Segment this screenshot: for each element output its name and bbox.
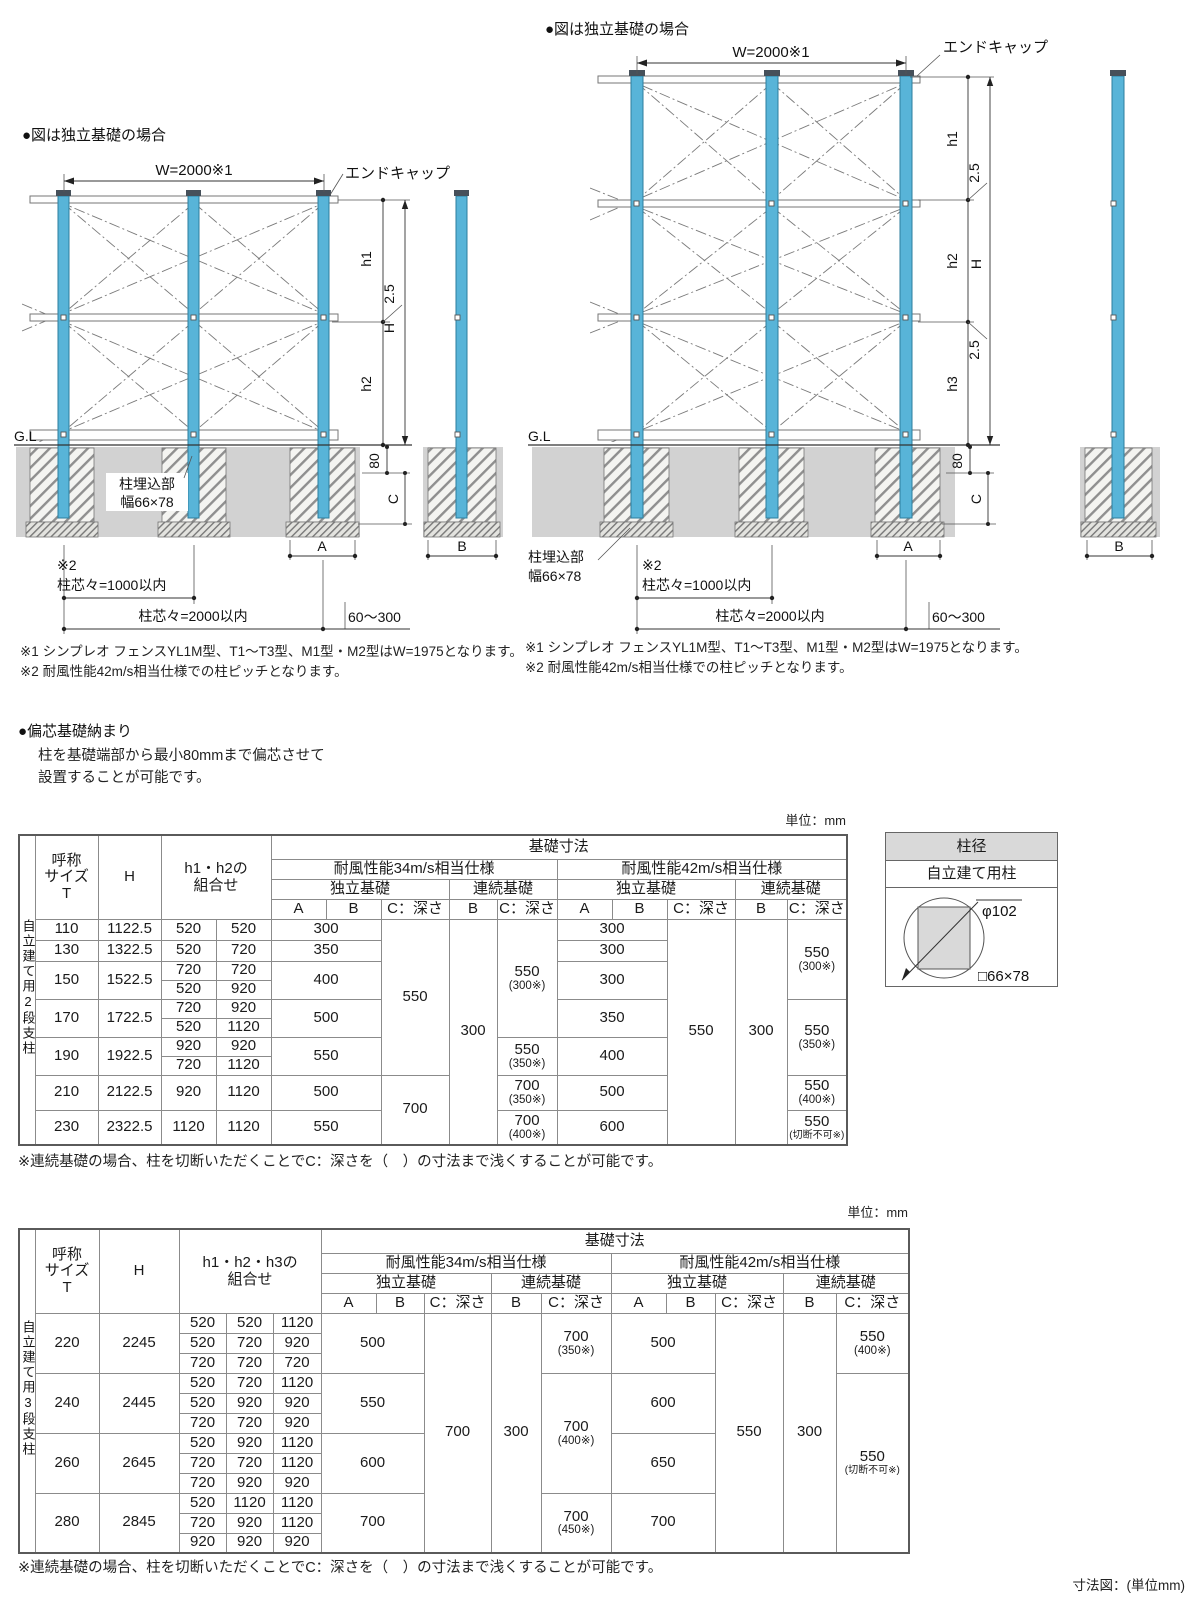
dia-label: φ102 [982, 903, 1017, 920]
cell: 920 [161, 1037, 216, 1056]
t1-header-cont34: 連続基礎 [449, 879, 557, 899]
svg-text:W=2000※1: W=2000※1 [732, 44, 809, 61]
svg-text:H: H [968, 259, 984, 269]
table2-group-cell: 自立建て用3段支柱 [19, 1229, 35, 1553]
cell: 2245 [99, 1313, 179, 1373]
dimension-pitch: ※2 柱芯々=1000以内 柱芯々=2000以内 60～300 [635, 545, 1000, 634]
svg-text:80: 80 [366, 453, 382, 469]
dimension-a: A [875, 538, 942, 560]
cell: 210 [35, 1075, 98, 1110]
t2-header-cont34: 連続基礎 [491, 1273, 611, 1293]
svg-text:柱埋込部: 柱埋込部 [528, 549, 584, 565]
svg-text:B: B [457, 538, 466, 554]
svg-text:h2: h2 [944, 253, 960, 269]
cell: 220 [35, 1313, 99, 1373]
cell: 700(450※) [541, 1493, 611, 1553]
cell: 1722.5 [98, 999, 161, 1037]
cell: 1120 [273, 1313, 321, 1333]
cell: 1120 [216, 1056, 271, 1075]
t2-header-combo: h1・h2・h3の 組合せ [179, 1229, 321, 1313]
t2-header-c: C：深さ [424, 1293, 491, 1313]
hdr-line: サイズ [36, 1263, 99, 1280]
table1-group-cell: 自立建て用2段支柱 [19, 835, 35, 1145]
cell: 720 [161, 999, 216, 1018]
table2-unit: 単位：mm [708, 1202, 908, 1221]
cell: 700 [611, 1493, 715, 1553]
square-size-label: □66×78 [978, 968, 1029, 985]
t2-header-b: B [783, 1293, 836, 1313]
t2-header-wind34: 耐風性能34m/s相当仕様 [321, 1253, 611, 1273]
side-view-post [454, 190, 469, 518]
t1-header-cont42: 連続基礎 [735, 879, 847, 899]
table1-unit: 単位：mm [646, 810, 846, 829]
cell: 700 [321, 1493, 424, 1553]
t2-header-c: C：深さ [715, 1293, 783, 1313]
t2-header-base: 基礎寸法 [321, 1229, 909, 1253]
svg-text:幅66×78: 幅66×78 [120, 494, 174, 510]
t2-header-size: 呼称 サイズ T [35, 1229, 99, 1313]
svg-text:60～300: 60～300 [932, 609, 985, 625]
cell: 500 [271, 999, 381, 1037]
cell: 720 [179, 1453, 226, 1473]
rails [598, 76, 920, 440]
dimension-pitch: ※2 柱芯々=1000以内 柱芯々=2000以内 60～300 [57, 545, 410, 634]
hdr-line: T [36, 886, 98, 903]
t2-header-a: A [321, 1293, 376, 1313]
gl-label: G.L [528, 428, 551, 444]
t1-header-b: B [326, 899, 381, 919]
cell: 500 [321, 1313, 424, 1373]
cell: 920 [216, 980, 271, 999]
cell: 520 [179, 1333, 226, 1353]
cell: 720 [226, 1413, 273, 1433]
svg-text:A: A [903, 538, 913, 554]
cell: 720 [179, 1513, 226, 1533]
dimension-w: W=2000※1 [64, 162, 324, 192]
cell: 920 [273, 1473, 321, 1493]
cell: 720 [216, 961, 271, 980]
svg-text:h3: h3 [944, 376, 960, 392]
svg-text:B: B [1114, 538, 1123, 554]
svg-text:h2: h2 [358, 376, 374, 392]
cell: 920 [226, 1533, 273, 1553]
table-row: 110 1122.5 520 520 300 550 300 550(300※)… [19, 919, 847, 940]
cell: 700 [381, 1075, 449, 1145]
cell: 520 [179, 1433, 226, 1453]
gl-label: G.L [14, 428, 37, 444]
cell: 1120 [216, 1018, 271, 1037]
cell: 1120 [273, 1373, 321, 1393]
table2-3stage: 自立建て用3段支柱 呼称 サイズ T H h1・h2・h3の 組合せ 基礎寸法 … [18, 1228, 910, 1554]
dimension-unit-note: 寸法図：(単位mm) [950, 1574, 1185, 1594]
t1-header-wind42: 耐風性能42m/s相当仕様 [557, 859, 847, 879]
cell: 920 [226, 1473, 273, 1493]
t2-header-wind42: 耐風性能42m/s相当仕様 [611, 1253, 909, 1273]
t2-header-b: B [376, 1293, 424, 1313]
cell: 720 [179, 1353, 226, 1373]
cell: 520 [179, 1393, 226, 1413]
t1-header-c: C：深さ [667, 899, 735, 919]
endcap-label: エンドキャップ [917, 39, 1048, 76]
cell: 400 [271, 961, 381, 999]
cell: 190 [35, 1037, 98, 1075]
t1-header-b: B [612, 899, 667, 919]
cell: 720 [226, 1453, 273, 1473]
cell: 300 [557, 961, 667, 999]
cell: 550 [381, 919, 449, 1075]
cell: 920 [273, 1393, 321, 1413]
post-box-subtitle: 自立建て用柱 [886, 861, 1057, 888]
t1-header-b: B [449, 899, 497, 919]
t2-header-indep42: 独立基礎 [611, 1273, 783, 1293]
svg-text:柱埋込部: 柱埋込部 [119, 476, 175, 492]
svg-text:h1: h1 [944, 131, 960, 147]
cell: 700 [424, 1313, 491, 1553]
t1-header-indep42: 独立基礎 [557, 879, 735, 899]
svg-text:C: C [968, 494, 984, 504]
t1-header-wind34: 耐風性能34m/s相当仕様 [271, 859, 557, 879]
t1-header-a: A [557, 899, 612, 919]
svg-text:h1: h1 [358, 251, 374, 267]
table-row: 自立建て用3段支柱 呼称 サイズ T H h1・h2・h3の 組合せ 基礎寸法 [19, 1229, 909, 1253]
cell: 650 [611, 1433, 715, 1493]
cell: 720 [226, 1353, 273, 1373]
cell: 300 [735, 919, 787, 1145]
cell: 550(350※) [497, 1037, 557, 1075]
hdr-line: T [36, 1280, 99, 1297]
hdr-line: 呼称 [36, 1247, 99, 1264]
left-note-1: ※1 シンプレオ フェンスYL1M型、T1～T3型、M1型・M2型はW=1975… [20, 640, 523, 660]
t1-header-indep34: 独立基礎 [271, 879, 449, 899]
cell: 550 [667, 919, 735, 1145]
cell: 350 [271, 940, 381, 961]
t1-header-h: H [98, 835, 161, 919]
cell: 1122.5 [98, 919, 161, 940]
dimension-w: W=2000※1 [637, 44, 906, 74]
t2-header-cont42: 連続基礎 [783, 1273, 909, 1293]
cell: 920 [179, 1533, 226, 1553]
cell: 720 [161, 961, 216, 980]
svg-text:柱芯々=1000以内: 柱芯々=1000以内 [642, 577, 751, 593]
cell: 600 [611, 1373, 715, 1433]
cell: 550(切断不可※) [787, 1110, 847, 1145]
table-row: 自立建て用2段支柱 呼称 サイズ T H h1・h2の 組合せ 基礎寸法 [19, 835, 847, 859]
eccentric-title: ●偏芯基礎納まり [18, 720, 132, 741]
cell: 300 [783, 1313, 836, 1553]
hdr-line: サイズ [36, 869, 98, 886]
cell: 520 [179, 1373, 226, 1393]
cell: 300 [491, 1313, 541, 1553]
svg-text:エンドキャップ: エンドキャップ [943, 39, 1048, 56]
cell: 1120 [273, 1433, 321, 1453]
cell: 1120 [216, 1075, 271, 1110]
cell: 550 [321, 1373, 424, 1433]
cell: 550(400※) [787, 1075, 847, 1110]
catalog-page: ●図は独立基礎の場合 [0, 0, 1200, 1608]
right-note-1: ※1 シンプレオ フェンスYL1M型、T1～T3型、M1型・M2型はW=1975… [525, 636, 1028, 656]
cell: 260 [35, 1433, 99, 1493]
left-diagram-title: ●図は独立基礎の場合 [22, 124, 166, 145]
eccentric-line1: 柱を基礎端部から最小80mmまで偏芯させて [38, 744, 325, 765]
svg-text:80: 80 [949, 453, 965, 469]
svg-text:H: H [381, 323, 397, 333]
t2-header-b: B [491, 1293, 541, 1313]
dimension-heights: h1 h2 h3 2.5 2.5 H [910, 75, 994, 447]
svg-text:A: A [317, 538, 327, 554]
cell: 720 [179, 1473, 226, 1493]
svg-text:2.5: 2.5 [966, 340, 982, 360]
cell: 300 [557, 940, 667, 961]
cell: 920 [226, 1393, 273, 1413]
cell: 1322.5 [98, 940, 161, 961]
right-note-2: ※2 耐風性能42m/s相当仕様での柱ピッチとなります。 [525, 656, 853, 676]
table1-group-label: 自立建て用2段支柱 [20, 919, 35, 1056]
cell: 920 [226, 1433, 273, 1453]
cell: 550(切断不可※) [836, 1373, 909, 1553]
cell: 1522.5 [98, 961, 161, 999]
cell: 700(350※) [497, 1075, 557, 1110]
side-view-post [1110, 70, 1126, 518]
cell: 150 [35, 961, 98, 999]
cell: 550(300※) [497, 919, 557, 1037]
cell: 720 [216, 940, 271, 961]
svg-text:W=2000※1: W=2000※1 [155, 162, 232, 179]
cell: 920 [161, 1075, 216, 1110]
dimension-a: A [288, 538, 357, 560]
cell: 550 [715, 1313, 783, 1553]
cell: 520 [161, 919, 216, 940]
cell: 920 [226, 1513, 273, 1533]
cell: 500 [271, 1075, 381, 1110]
right-diagram-3stage: G.L W=2000※1 エンドキャップ h1 h2 h3 2. [520, 10, 1200, 642]
hdr-line: 組合せ [180, 1271, 321, 1288]
cell: 720 [161, 1056, 216, 1075]
cell: 720 [226, 1373, 273, 1393]
cell: 170 [35, 999, 98, 1037]
dimension-heights: h1 h2 2.5 H [332, 198, 410, 447]
cell: 920 [216, 1037, 271, 1056]
t1-header-base: 基礎寸法 [271, 835, 847, 859]
svg-text:柱芯々=2000以内: 柱芯々=2000以内 [138, 608, 247, 624]
t1-header-b: B [735, 899, 787, 919]
t1-header-c: C：深さ [787, 899, 847, 919]
dimension-b: B [1085, 538, 1154, 560]
table-row: 220 2245 520 520 1120 500 700 300 700(35… [19, 1313, 909, 1333]
cell: 720 [273, 1353, 321, 1373]
cell: 300 [271, 919, 381, 940]
svg-text:60～300: 60～300 [348, 609, 401, 625]
cell: 1922.5 [98, 1037, 161, 1075]
cell: 300 [557, 919, 667, 940]
rails [30, 196, 338, 440]
hdr-line: h1・h2の [162, 860, 271, 877]
cell: 520 [161, 1018, 216, 1037]
cell: 550(300※) [787, 919, 847, 999]
cell: 2845 [99, 1493, 179, 1553]
svg-text:C: C [385, 494, 401, 504]
endcap-label: エンドキャップ [330, 165, 450, 195]
svg-text:2.5: 2.5 [966, 163, 982, 183]
post-box-title: 柱径 [886, 833, 1057, 861]
cell: 230 [35, 1110, 98, 1145]
svg-text:2.5: 2.5 [381, 284, 397, 304]
cell: 500 [611, 1313, 715, 1373]
t2-header-c: C：深さ [836, 1293, 909, 1313]
cell: 300 [449, 919, 497, 1145]
post-square [918, 907, 970, 969]
cell: 110 [35, 919, 98, 940]
cell: 500 [557, 1075, 667, 1110]
cell: 700(350※) [541, 1313, 611, 1373]
cell: 550(400※) [836, 1313, 909, 1373]
cell: 600 [557, 1110, 667, 1145]
dimension-b: B [426, 538, 498, 560]
post-section-diagram: φ102 □66×78 [886, 888, 1055, 986]
cell: 400 [557, 1037, 667, 1075]
t2-header-h: H [99, 1229, 179, 1313]
left-note-2: ※2 耐風性能42m/s相当仕様での柱ピッチとなります。 [20, 660, 348, 680]
t1-header-a: A [271, 899, 326, 919]
cell: 920 [273, 1413, 321, 1433]
cell: 700(400※) [541, 1373, 611, 1493]
t1-header-c: C：深さ [381, 899, 449, 919]
t1-header-c: C：深さ [497, 899, 557, 919]
cell: 550(350※) [787, 999, 847, 1075]
t2-header-b: B [666, 1293, 715, 1313]
t2-header-c: C：深さ [541, 1293, 611, 1313]
cell: 920 [273, 1533, 321, 1553]
arrowhead [902, 968, 910, 980]
cell: 520 [226, 1313, 273, 1333]
cell: 520 [179, 1493, 226, 1513]
cell: 1120 [216, 1110, 271, 1145]
dimension-depth: 80 C [358, 445, 412, 526]
cell: 720 [226, 1333, 273, 1353]
hdr-line: 呼称 [36, 853, 98, 870]
cell: 1120 [226, 1493, 273, 1513]
cell: 1120 [161, 1110, 216, 1145]
cell: 520 [179, 1313, 226, 1333]
cell: 520 [216, 919, 271, 940]
table1-footnote: ※連続基礎の場合、柱を切断いただくことでC：深さを（ ）の寸法まで浅くすることが… [18, 1150, 662, 1171]
cell: 920 [216, 999, 271, 1018]
hdr-line: h1・h2・h3の [180, 1254, 321, 1271]
table2-footnote: ※連続基礎の場合、柱を切断いただくことでC：深さを（ ）の寸法まで浅くすることが… [18, 1556, 662, 1577]
cell: 920 [273, 1333, 321, 1353]
t1-header-size: 呼称 サイズ T [35, 835, 98, 919]
svg-text:幅66×78: 幅66×78 [528, 568, 582, 584]
cell: 520 [161, 940, 216, 961]
t1-header-combo: h1・h2の 組合せ [161, 835, 271, 919]
cell: 700(400※) [497, 1110, 557, 1145]
cell: 2122.5 [98, 1075, 161, 1110]
cell: 130 [35, 940, 98, 961]
svg-text:柱芯々=2000以内: 柱芯々=2000以内 [715, 608, 824, 624]
cell: 2645 [99, 1433, 179, 1493]
hdr-line: 組合せ [162, 877, 271, 894]
svg-text:※2: ※2 [57, 557, 77, 573]
t2-header-a: A [611, 1293, 666, 1313]
svg-text:柱芯々=1000以内: 柱芯々=1000以内 [57, 577, 166, 593]
cell: 520 [161, 980, 216, 999]
cell: 1120 [273, 1453, 321, 1473]
cell: 600 [321, 1433, 424, 1493]
cell: 720 [179, 1413, 226, 1433]
left-diagram-2stage: G.L W=2000※1 エンドキャップ h1 h2 2.5 [10, 150, 512, 642]
post-diameter-box: 柱径 自立建て用柱 φ102 □66×78 [885, 832, 1058, 987]
eccentric-line2: 設置することが可能です。 [38, 766, 211, 787]
svg-text:※2: ※2 [642, 557, 662, 573]
cell: 550 [271, 1037, 381, 1075]
cell: 1120 [273, 1493, 321, 1513]
table1-2stage: 自立建て用2段支柱 呼称 サイズ T H h1・h2の 組合せ 基礎寸法 耐風性… [18, 834, 848, 1146]
cell: 550 [271, 1110, 381, 1145]
cell: 1120 [273, 1513, 321, 1533]
table2-group-label: 自立建て用3段支柱 [20, 1320, 35, 1457]
svg-text:エンドキャップ: エンドキャップ [345, 165, 450, 182]
cell: 240 [35, 1373, 99, 1433]
cell: 280 [35, 1493, 99, 1553]
cell: 2445 [99, 1373, 179, 1433]
cell: 2322.5 [98, 1110, 161, 1145]
t2-header-indep34: 独立基礎 [321, 1273, 491, 1293]
cell: 350 [557, 999, 667, 1037]
